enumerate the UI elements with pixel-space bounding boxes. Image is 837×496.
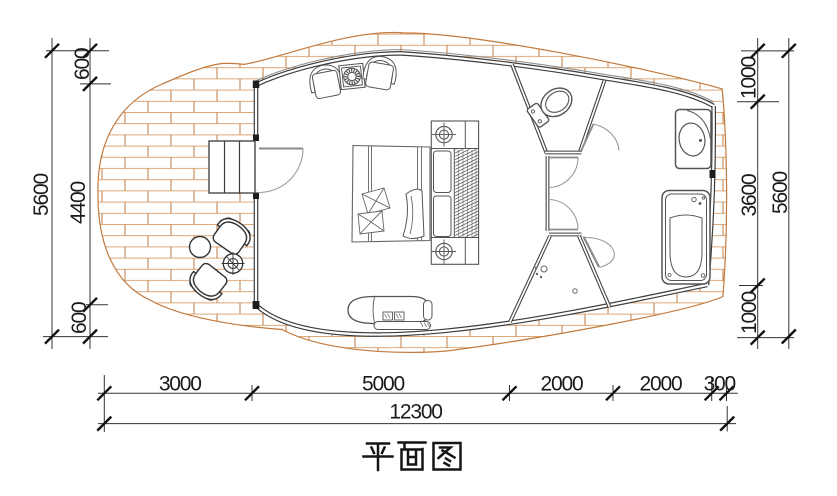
svg-text:12300: 12300 xyxy=(389,401,442,424)
svg-text:3000: 3000 xyxy=(159,373,201,396)
svg-text:2000: 2000 xyxy=(640,373,682,396)
svg-text:1000: 1000 xyxy=(738,292,761,334)
svg-text:600: 600 xyxy=(71,48,94,80)
svg-text:300: 300 xyxy=(704,373,736,396)
svg-text:600: 600 xyxy=(68,302,91,334)
svg-text:5000: 5000 xyxy=(362,373,404,396)
svg-text:4400: 4400 xyxy=(67,182,90,224)
svg-text:1000: 1000 xyxy=(738,57,761,99)
svg-text:5600: 5600 xyxy=(769,172,792,214)
svg-text:3600: 3600 xyxy=(738,174,761,216)
svg-text:2000: 2000 xyxy=(541,373,583,396)
svg-text:5600: 5600 xyxy=(30,174,53,216)
